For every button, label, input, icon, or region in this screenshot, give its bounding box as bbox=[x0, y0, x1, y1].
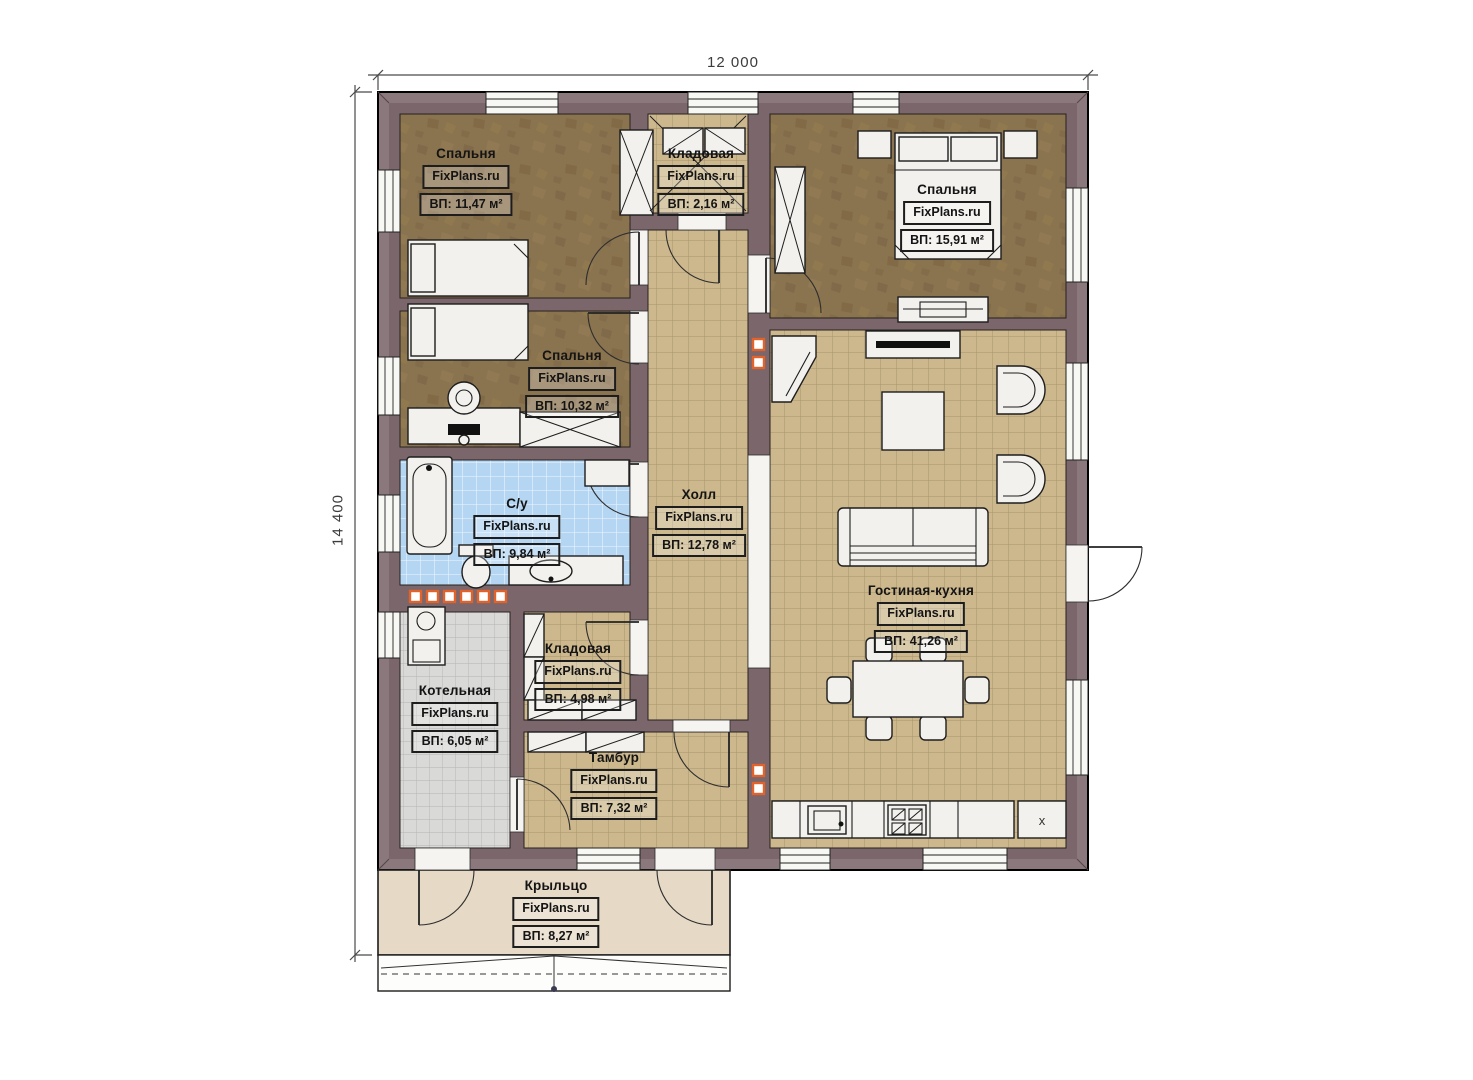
dimension-depth: 14 400 bbox=[330, 494, 347, 546]
room-name: С/у bbox=[473, 496, 560, 511]
room-label-bedroom1: Спальня FixPlans.ru ВП: 11,47 м² bbox=[419, 146, 512, 216]
room-area: ВП: 10,32 м² bbox=[525, 395, 619, 419]
watermark: FixPlans.ru bbox=[534, 660, 621, 684]
watermark: FixPlans.ru bbox=[473, 515, 560, 539]
room-label-storage2: Кладовая FixPlans.ru ВП: 4,98 м² bbox=[534, 641, 621, 711]
room-name: Кладовая bbox=[657, 146, 744, 161]
watermark: FixPlans.ru bbox=[877, 602, 964, 626]
room-area: ВП: 15,91 м² bbox=[900, 229, 994, 253]
bath-cabinet bbox=[585, 460, 629, 486]
room-label-bathroom: С/у FixPlans.ru ВП: 9,84 м² bbox=[473, 496, 560, 566]
floor-hall bbox=[648, 230, 748, 720]
room-name: Спальня bbox=[419, 146, 512, 161]
kitchen-stove bbox=[888, 805, 926, 835]
watermark: FixPlans.ru bbox=[512, 897, 599, 921]
kitchen-counter: x bbox=[772, 801, 1066, 838]
tv-stand bbox=[866, 331, 960, 358]
room-name: Крыльцо bbox=[512, 878, 599, 893]
room-name: Тамбур bbox=[570, 750, 657, 765]
watermark: FixPlans.ru bbox=[903, 201, 990, 225]
dresser-bedroom3 bbox=[898, 297, 988, 322]
watermark: FixPlans.ru bbox=[411, 702, 498, 726]
room-label-hall: Холл FixPlans.ru ВП: 12,78 м² bbox=[652, 487, 746, 557]
sofa bbox=[838, 508, 988, 566]
room-label-tambour: Тамбур FixPlans.ru ВП: 7,32 м² bbox=[570, 750, 657, 820]
nightstand-left bbox=[858, 131, 891, 158]
room-name: Кладовая bbox=[534, 641, 621, 656]
dimension-width: 12 000 bbox=[707, 54, 759, 71]
room-area: ВП: 2,16 м² bbox=[658, 193, 745, 217]
hall-living-opening bbox=[748, 455, 770, 668]
room-label-bedroom3: Спальня FixPlans.ru ВП: 15,91 м² bbox=[900, 182, 994, 252]
boiler-unit bbox=[408, 607, 445, 665]
room-area: ВП: 11,47 м² bbox=[419, 193, 512, 217]
watermark: FixPlans.ru bbox=[422, 165, 509, 189]
room-name: Спальня bbox=[525, 348, 619, 363]
room-area: ВП: 12,78 м² bbox=[652, 534, 746, 558]
kitchen-sink bbox=[808, 806, 846, 834]
room-label-boiler: Котельная FixPlans.ru ВП: 6,05 м² bbox=[411, 683, 498, 753]
armchair-1 bbox=[997, 366, 1045, 414]
room-area: ВП: 6,05 м² bbox=[412, 730, 499, 754]
armchair-2 bbox=[997, 455, 1045, 503]
room-label-porch: Крыльцо FixPlans.ru ВП: 8,27 м² bbox=[512, 878, 599, 948]
room-area: ВП: 9,84 м² bbox=[474, 543, 561, 567]
room-area: ВП: 4,98 м² bbox=[535, 688, 622, 712]
wardrobe-bedroom1 bbox=[620, 130, 653, 215]
room-name: Спальня bbox=[900, 182, 994, 197]
room-label-bedroom2: Спальня FixPlans.ru ВП: 10,32 м² bbox=[525, 348, 619, 418]
room-name: Гостиная-кухня bbox=[868, 583, 974, 598]
watermark: FixPlans.ru bbox=[657, 165, 744, 189]
bed-single-2 bbox=[408, 304, 528, 360]
room-name: Котельная bbox=[411, 683, 498, 698]
room-name: Холл bbox=[652, 487, 746, 502]
watermark: FixPlans.ru bbox=[528, 367, 615, 391]
room-label-living-kitchen: Гостиная-кухня FixPlans.ru ВП: 41,26 м² bbox=[868, 583, 974, 653]
watermark: FixPlans.ru bbox=[655, 506, 742, 530]
floor-plan-canvas: x 12 000 14 400 Спальня FixPlans.ru ВП: … bbox=[0, 0, 1473, 1080]
wardrobe-bedroom3 bbox=[775, 167, 805, 273]
room-area: ВП: 41,26 м² bbox=[874, 630, 968, 654]
nightstand-right bbox=[1004, 131, 1037, 158]
cabinets-tambour bbox=[528, 732, 644, 752]
room-area: ВП: 7,32 м² bbox=[571, 797, 658, 821]
coffee-table bbox=[882, 392, 944, 450]
room-label-storage-top: Кладовая FixPlans.ru ВП: 2,16 м² bbox=[657, 146, 744, 216]
watermark: FixPlans.ru bbox=[570, 769, 657, 793]
room-area: ВП: 8,27 м² bbox=[513, 925, 600, 949]
bathtub bbox=[407, 457, 452, 554]
bed-single-1 bbox=[408, 240, 528, 296]
kitchen-x-marker: x bbox=[1039, 813, 1046, 828]
